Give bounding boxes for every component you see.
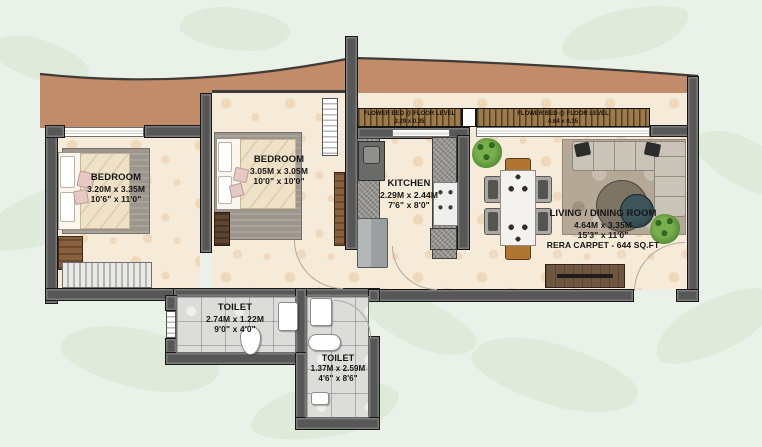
wall-toilet2-right-stub — [368, 289, 380, 302]
room-dim-m: 2.74M x 1.22M — [190, 314, 280, 324]
bedroom2-side-wardrobe — [334, 172, 345, 246]
room-rera-carpet: RERA CARPET - 644 SQ.FT — [538, 240, 668, 250]
room-dim-ft: 7'6" x 8'0" — [366, 200, 452, 210]
living-label: LIVING / DINING ROOM 4.64M x 3.35M 15'3"… — [538, 208, 668, 251]
dining-chair-right — [534, 176, 552, 203]
wall-toilet2-bottom — [295, 417, 380, 430]
kitchen-fridge — [357, 218, 388, 268]
room-dim-m: 4.64M x 3.35M — [538, 220, 668, 230]
tv-screen — [557, 274, 613, 278]
flower-bed-text: FLOWER BED @ FLOOR LEVEL — [490, 111, 636, 119]
dining-table — [500, 170, 536, 246]
flower-bed-dim: 2.29 x 0.35 — [359, 119, 460, 127]
bedroom2-label: BEDROOM 3.05M x 3.05M 10'0" x 10'0" — [230, 154, 328, 186]
room-name: KITCHEN — [366, 178, 452, 190]
toilet1-label: TOILET 2.74M x 1.22M 9'0" x 4'0" — [190, 302, 280, 334]
room-dim-m: 3.05M x 3.05M — [230, 166, 328, 176]
flower-bed-text: FLOWER BED @ FLOOR LEVEL — [359, 111, 460, 119]
wall-right-outer — [687, 76, 699, 302]
wall-bedroom1-top-stub-left — [45, 125, 65, 138]
kitchen-label: KITCHEN 2.29M x 2.44M 7'6" x 8'0" — [366, 178, 452, 210]
room-dim-m: 1.37M x 2.59M — [302, 364, 374, 374]
chair-seat — [488, 180, 498, 199]
wall-bedroom1-bottom — [45, 288, 175, 301]
wall-living-top-right — [650, 125, 690, 137]
wall-living-bottom — [378, 289, 634, 302]
room-name: TOILET — [302, 353, 374, 364]
chair-seat — [488, 212, 498, 231]
bedroom2-top-edge — [212, 90, 358, 93]
kitchen-sink-basin — [363, 146, 380, 164]
toilet1-washbasin — [278, 302, 298, 331]
toilet2-label: TOILET 1.37M x 2.59M 4'6" x 8'6" — [302, 353, 374, 383]
sofa-cushion-dark — [644, 142, 661, 158]
room-name: TOILET — [190, 302, 280, 314]
wall-bedroom1-bedroom2 — [200, 93, 212, 253]
flower-bed-dim: 4.64 x 0.35 — [490, 119, 636, 127]
toilet2-shower-tray — [311, 392, 329, 405]
room-name: LIVING / DINING ROOM — [538, 208, 668, 220]
bedroom1-dresser — [62, 262, 152, 288]
flower-bed-gap-pillar — [462, 108, 476, 127]
bedroom1-window — [64, 127, 144, 137]
floor-plan-canvas: BEDROOM 3.20M x 3.35M 10'6" x 11'0" BEDR… — [0, 0, 762, 447]
room-dim-m: 2.29M x 2.44M — [366, 190, 452, 200]
room-dim-ft: 10'0" x 10'0" — [230, 176, 328, 186]
flower-bed-right-label: FLOWER BED @ FLOOR LEVEL 4.64 x 0.35 — [490, 111, 636, 126]
wall-left-outer — [45, 126, 58, 304]
toilet2-washbasin — [310, 298, 332, 326]
room-dim-ft: 9'0" x 4'0" — [190, 324, 280, 334]
room-dim-ft: 10'6" x 11'0" — [70, 194, 162, 204]
kitchen-corner-window — [322, 98, 338, 156]
wall-toilet1-bottom — [165, 352, 307, 365]
flower-bed-left-label: FLOWER BED @ FLOOR LEVEL 2.29 x 0.35 — [359, 111, 460, 126]
chair-seat — [538, 180, 548, 199]
room-dim-m: 3.20M x 3.35M — [70, 184, 162, 194]
kitchen-top-window — [392, 129, 450, 137]
toilet1-window — [166, 311, 176, 338]
living-window — [476, 127, 650, 137]
room-name: BEDROOM — [230, 154, 328, 166]
bedroom2-wardrobe — [214, 212, 230, 246]
room-dim-ft: 15'3" x 11'0" — [538, 230, 668, 240]
room-name: BEDROOM — [70, 172, 162, 184]
wall-kitchen-dining — [457, 135, 470, 250]
room-dim-ft: 4'6" x 8'6" — [302, 374, 374, 384]
bedroom1-label: BEDROOM 3.20M x 3.35M 10'6" x 11'0" — [70, 172, 162, 204]
